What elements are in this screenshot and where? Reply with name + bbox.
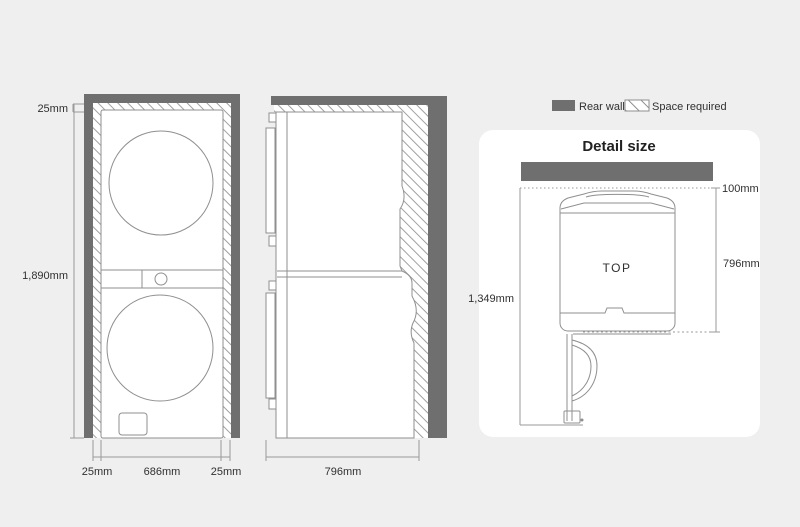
legend: Rear wall Space required (552, 100, 727, 113)
dim-unit-width: 686mm (144, 466, 181, 478)
lower-latch-tab (269, 399, 276, 409)
door-foot-pin (581, 419, 584, 422)
lower-door-profile (266, 293, 275, 398)
upper-hinge-tab (269, 113, 276, 122)
installation-clearance-diagram: 25mm 1,890mm 25mm 686mm 25mm (0, 0, 800, 527)
upper-door-profile (266, 128, 275, 233)
detail-rear-wall (521, 162, 713, 181)
detail-card-title: Detail size (582, 138, 655, 155)
stacked-unit-side (276, 112, 416, 438)
dim-detail-unit-depth: 796mm (723, 258, 760, 270)
dim-total-height: 1,890mm (22, 270, 68, 282)
front-view: 25mm 1,890mm 25mm 686mm 25mm (22, 94, 241, 478)
stacked-unit-front (101, 110, 223, 438)
dim-left-clearance: 25mm (82, 466, 113, 478)
legend-space-required-label: Space required (652, 101, 727, 113)
unit-top-view: TOP (560, 191, 675, 334)
unit-top-label: TOP (603, 261, 632, 275)
dim-rear-clearance: 100mm (722, 183, 759, 195)
side-view-dimensions: 796mm (266, 440, 419, 478)
legend-rear-wall-swatch (552, 100, 575, 111)
legend-space-required-swatch (625, 100, 649, 111)
dim-top-clearance: 25mm (37, 103, 68, 115)
dim-right-clearance: 25mm (211, 466, 242, 478)
upper-latch-tab (269, 236, 276, 246)
legend-rear-wall-label: Rear wall (579, 101, 625, 113)
side-view: 796mm (266, 96, 447, 478)
lower-hinge-tab (269, 281, 276, 290)
dim-depth-door-open: 1,349mm (468, 293, 514, 305)
detail-card: Detail size TOP 100mm (468, 130, 760, 437)
dim-unit-depth: 796mm (325, 466, 362, 478)
